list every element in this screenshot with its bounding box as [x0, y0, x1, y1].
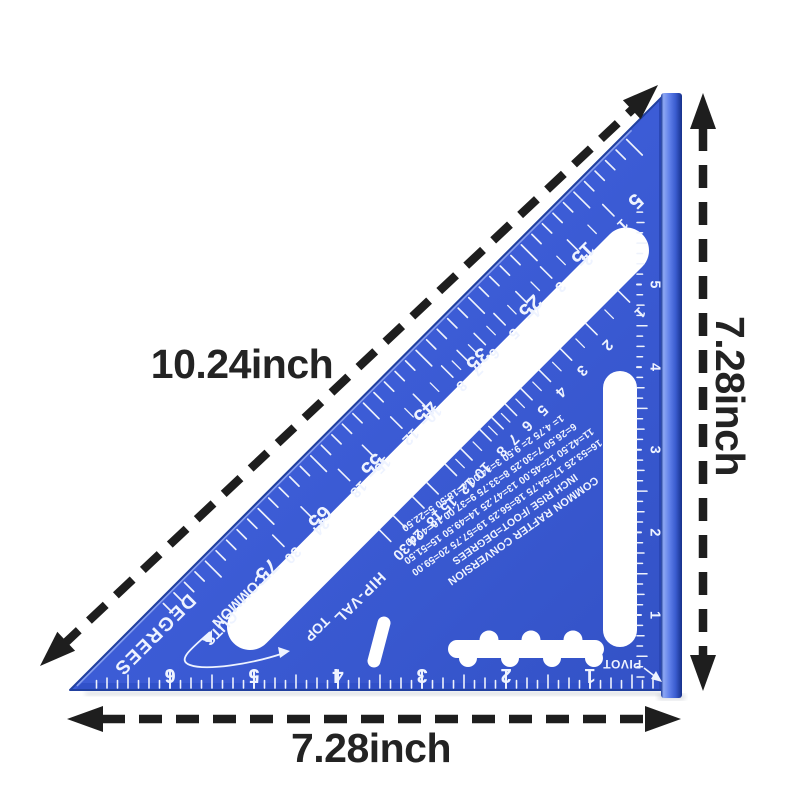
raised-lip-edge	[661, 93, 682, 698]
scale-number: 5	[248, 664, 259, 686]
scale-number: 4	[332, 664, 344, 686]
scale-number: 3	[416, 664, 427, 686]
speed-square-image: 515253545556575 12345678101215182430 123…	[0, 0, 800, 800]
arrowhead	[645, 706, 681, 732]
pivot-label: PIVOT	[603, 657, 642, 671]
hypotenuse-dimension-label: 10.24inch	[151, 341, 333, 387]
shadow	[85, 691, 675, 696]
scale-number: 2	[647, 528, 663, 536]
right-dimension-label: 7.28inch	[707, 316, 753, 476]
arrowhead	[67, 706, 103, 732]
scale-number: 2	[500, 664, 511, 686]
scale-number: 6	[164, 664, 175, 686]
scale-number: 4	[647, 363, 663, 371]
product-photo: 515253545556575 12345678101215182430 123…	[0, 0, 800, 800]
scale-number: 1	[584, 664, 595, 686]
arrowhead	[690, 655, 716, 691]
scale-number: 1	[647, 611, 663, 619]
bottom-dimension-label: 7.28inch	[291, 725, 451, 771]
arrowhead	[690, 93, 716, 129]
scale-number: 3	[647, 446, 663, 454]
scale-number: 5	[647, 280, 663, 288]
